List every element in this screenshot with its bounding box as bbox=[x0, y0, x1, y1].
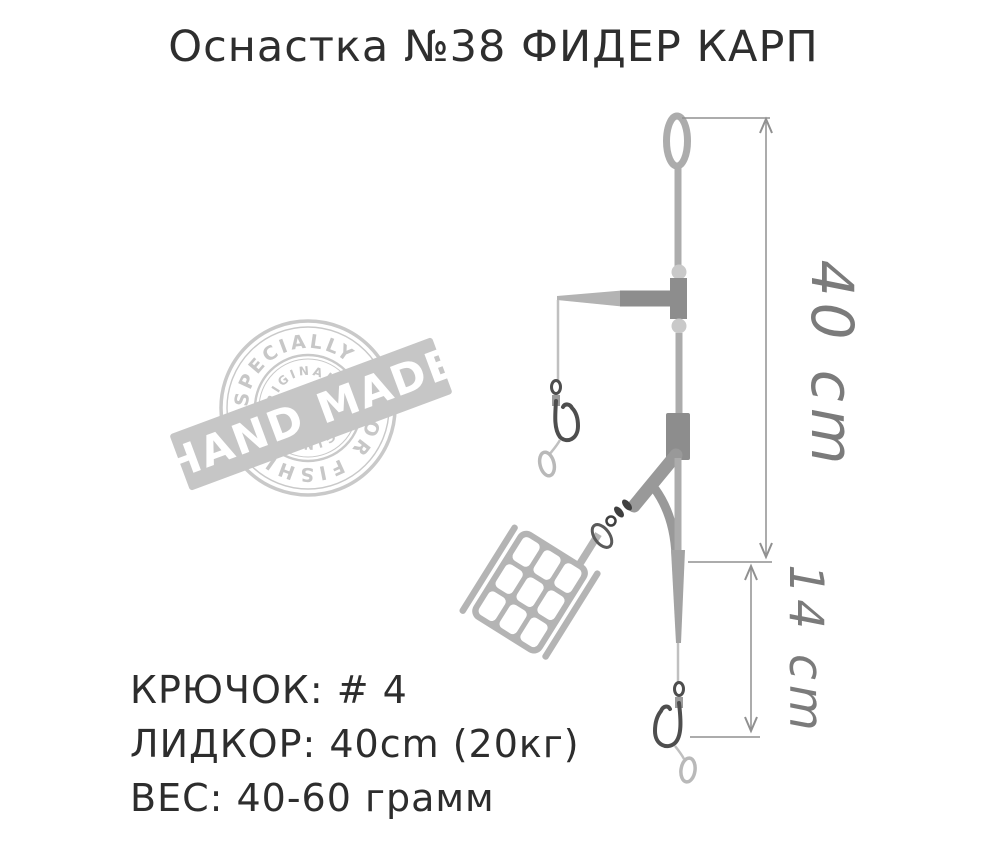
dimension-lines bbox=[682, 118, 772, 737]
link-ring bbox=[607, 517, 616, 526]
hook-upper-loop-line bbox=[549, 440, 560, 455]
hook-upper bbox=[537, 381, 578, 478]
main-line-taper bbox=[671, 550, 685, 643]
stop-bead-upper bbox=[672, 265, 687, 280]
hook-lower bbox=[655, 683, 697, 783]
feeder-cage bbox=[458, 493, 618, 665]
spec-line-leadcore: ЛИДКОР: 40cm (20кг) bbox=[130, 717, 580, 771]
spec-line-hook: КРЮЧОК: # 4 bbox=[130, 663, 580, 717]
cage-cells bbox=[477, 535, 584, 649]
top-loop bbox=[667, 116, 688, 166]
specs-block: КРЮЧОК: # 4 ЛИДКОР: 40cm (20кг) ВЕС: 40-… bbox=[130, 663, 580, 825]
hook-upper-eye bbox=[552, 381, 561, 394]
dim-label-40cm: 40 cm bbox=[798, 260, 866, 471]
hook-lower-wire bbox=[655, 703, 680, 746]
stop-bead-lower bbox=[672, 319, 687, 334]
hook-lower-eye bbox=[675, 683, 684, 696]
hook-loop-lower bbox=[679, 757, 696, 783]
t-connector bbox=[670, 278, 687, 319]
hook-lower-loop-line bbox=[675, 746, 684, 759]
boom-fillet bbox=[655, 489, 676, 556]
dim-label-14cm: 14 cm bbox=[778, 564, 833, 735]
side-boom-taper bbox=[557, 291, 622, 307]
hook-upper-wire bbox=[555, 401, 578, 440]
side-boom bbox=[620, 291, 672, 307]
diagram-page: Оснастка №38 ФИДЕР КАРП ESPECIALLY FOR F… bbox=[0, 0, 987, 863]
hook-loop-upper bbox=[537, 451, 556, 478]
feeder-boom-arm bbox=[634, 455, 676, 506]
spec-line-weight: ВЕС: 40-60 грамм bbox=[130, 771, 580, 825]
